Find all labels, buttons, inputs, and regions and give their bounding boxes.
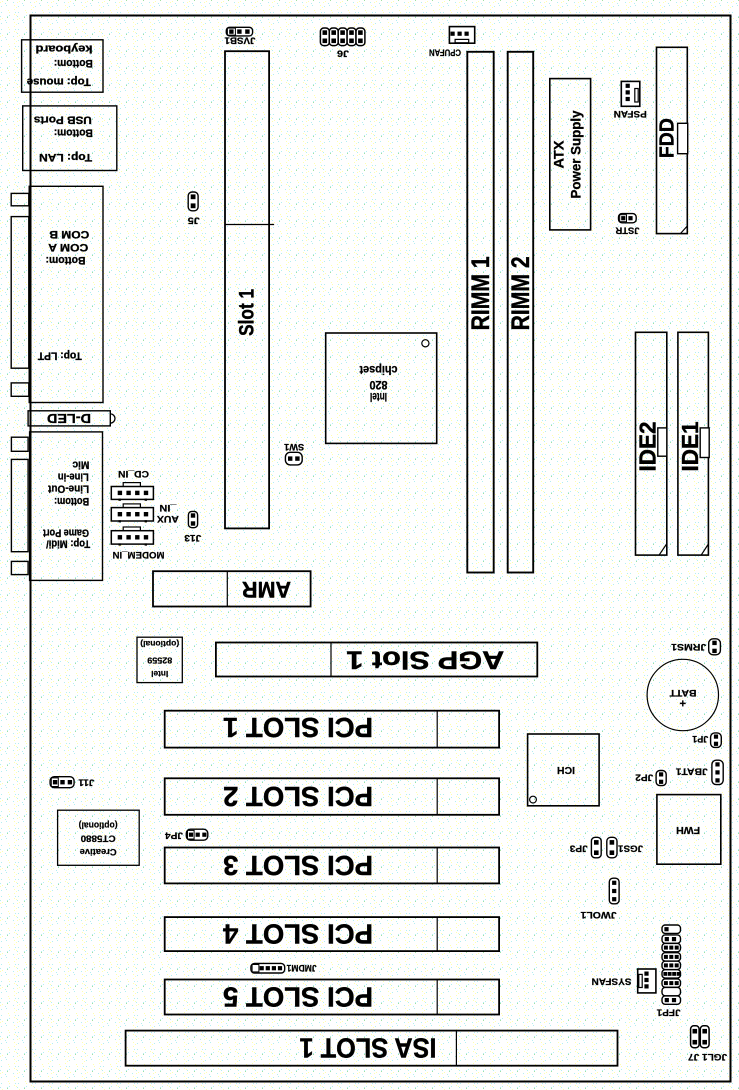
svg-text:BATT: BATT: [669, 687, 696, 698]
svg-text:(optional): (optional): [79, 820, 118, 830]
svg-text:JMDM1: JMDM1: [286, 962, 317, 973]
svg-text:Slot 1: Slot 1: [235, 289, 258, 336]
svg-text:JGL1 J7: JGL1 J7: [688, 1051, 727, 1062]
svg-text:COM A: COM A: [48, 241, 88, 253]
svg-text:MODEM_IN: MODEM_IN: [112, 549, 164, 560]
svg-text:Line-in: Line-in: [58, 470, 89, 482]
svg-text:keyboard: keyboard: [36, 43, 93, 55]
svg-text:AUX: AUX: [156, 513, 179, 524]
svg-text:PSFAN: PSFAN: [614, 108, 647, 119]
svg-text:FWH: FWH: [676, 824, 700, 835]
svg-text:JP3: JP3: [570, 843, 588, 854]
svg-text:Mic: Mic: [72, 459, 89, 471]
svg-text:J11: J11: [78, 777, 95, 788]
svg-text:AGP Slot 1: AGP Slot 1: [346, 645, 504, 673]
svg-text:PCI SLOT 1: PCI SLOT 1: [223, 712, 373, 743]
svg-text:JRMS1: JRMS1: [670, 641, 706, 652]
svg-text:J13: J13: [184, 532, 201, 543]
svg-text:Top: LAN: Top: LAN: [39, 151, 92, 163]
svg-text:Intel: Intel: [151, 669, 168, 679]
svg-text:JSTR: JSTR: [615, 225, 639, 236]
svg-text:JP4: JP4: [164, 829, 183, 840]
svg-text:JP2: JP2: [635, 771, 653, 782]
svg-text:Game Port: Game Port: [43, 527, 89, 539]
svg-text:chipset: chipset: [359, 363, 397, 375]
svg-text:820: 820: [370, 378, 388, 390]
svg-text:SYSFAN: SYSFAN: [591, 975, 631, 986]
svg-text:Bottom:: Bottom:: [54, 126, 93, 138]
svg-text:J6: J6: [337, 48, 349, 59]
svg-text:+: +: [680, 696, 686, 708]
svg-text:Top: mouse: Top: mouse: [27, 76, 91, 88]
svg-text:Bottom:: Bottom:: [54, 57, 93, 69]
svg-text:82559: 82559: [147, 656, 172, 666]
svg-text:CT5880: CT5880: [81, 833, 116, 843]
svg-text:J5: J5: [187, 215, 200, 226]
svg-text:ICH: ICH: [557, 764, 575, 776]
svg-text:D-LED: D-LED: [47, 411, 91, 426]
svg-text:SW1: SW1: [283, 441, 304, 452]
svg-text:JGS1: JGS1: [617, 843, 643, 854]
svg-text:(optional): (optional): [140, 639, 179, 649]
svg-text:Creative: Creative: [80, 847, 117, 857]
svg-text:Intel: Intel: [370, 390, 387, 402]
svg-text:_IN: _IN: [159, 502, 177, 513]
svg-text:RIMM 2: RIMM 2: [507, 256, 535, 330]
svg-text:RIMM 1: RIMM 1: [467, 256, 495, 330]
svg-text:Bottom:: Bottom:: [46, 254, 86, 266]
svg-text:CD_IN: CD_IN: [118, 468, 149, 479]
svg-text:ATX: ATX: [552, 141, 567, 169]
svg-text:IDE1: IDE1: [677, 421, 703, 471]
svg-text:FDD: FDD: [656, 118, 678, 158]
svg-text:Power Supply: Power Supply: [569, 110, 584, 198]
svg-text:COM B: COM B: [49, 228, 89, 240]
svg-text:PCI SLOT 4: PCI SLOT 4: [223, 919, 373, 950]
svg-text:JFP1: JFP1: [656, 1007, 681, 1018]
svg-text:Line-Out: Line-Out: [48, 483, 89, 495]
svg-text:AMR: AMR: [242, 577, 291, 602]
svg-text:JVSB1: JVSB1: [225, 36, 256, 46]
svg-text:Bottom:: Bottom:: [54, 495, 89, 507]
svg-text:Top: LPT: Top: LPT: [38, 350, 82, 362]
svg-text:IDE2: IDE2: [635, 422, 661, 472]
svg-text:Top: Midi/: Top: Midi/: [46, 538, 90, 550]
svg-text:JBAT1: JBAT1: [675, 765, 708, 776]
svg-text:ISA SLOT 1: ISA SLOT 1: [300, 1033, 437, 1064]
svg-text:JWOL1: JWOL1: [580, 909, 617, 920]
svg-text:PCI SLOT 3: PCI SLOT 3: [223, 850, 373, 881]
svg-text:USB Ports: USB Ports: [34, 114, 92, 126]
svg-text:PCI SLOT 5: PCI SLOT 5: [223, 982, 373, 1013]
svg-text:PCI SLOT 2: PCI SLOT 2: [223, 781, 373, 812]
svg-text:JP1: JP1: [692, 733, 709, 744]
svg-text:CPUFAN: CPUFAN: [429, 47, 461, 58]
